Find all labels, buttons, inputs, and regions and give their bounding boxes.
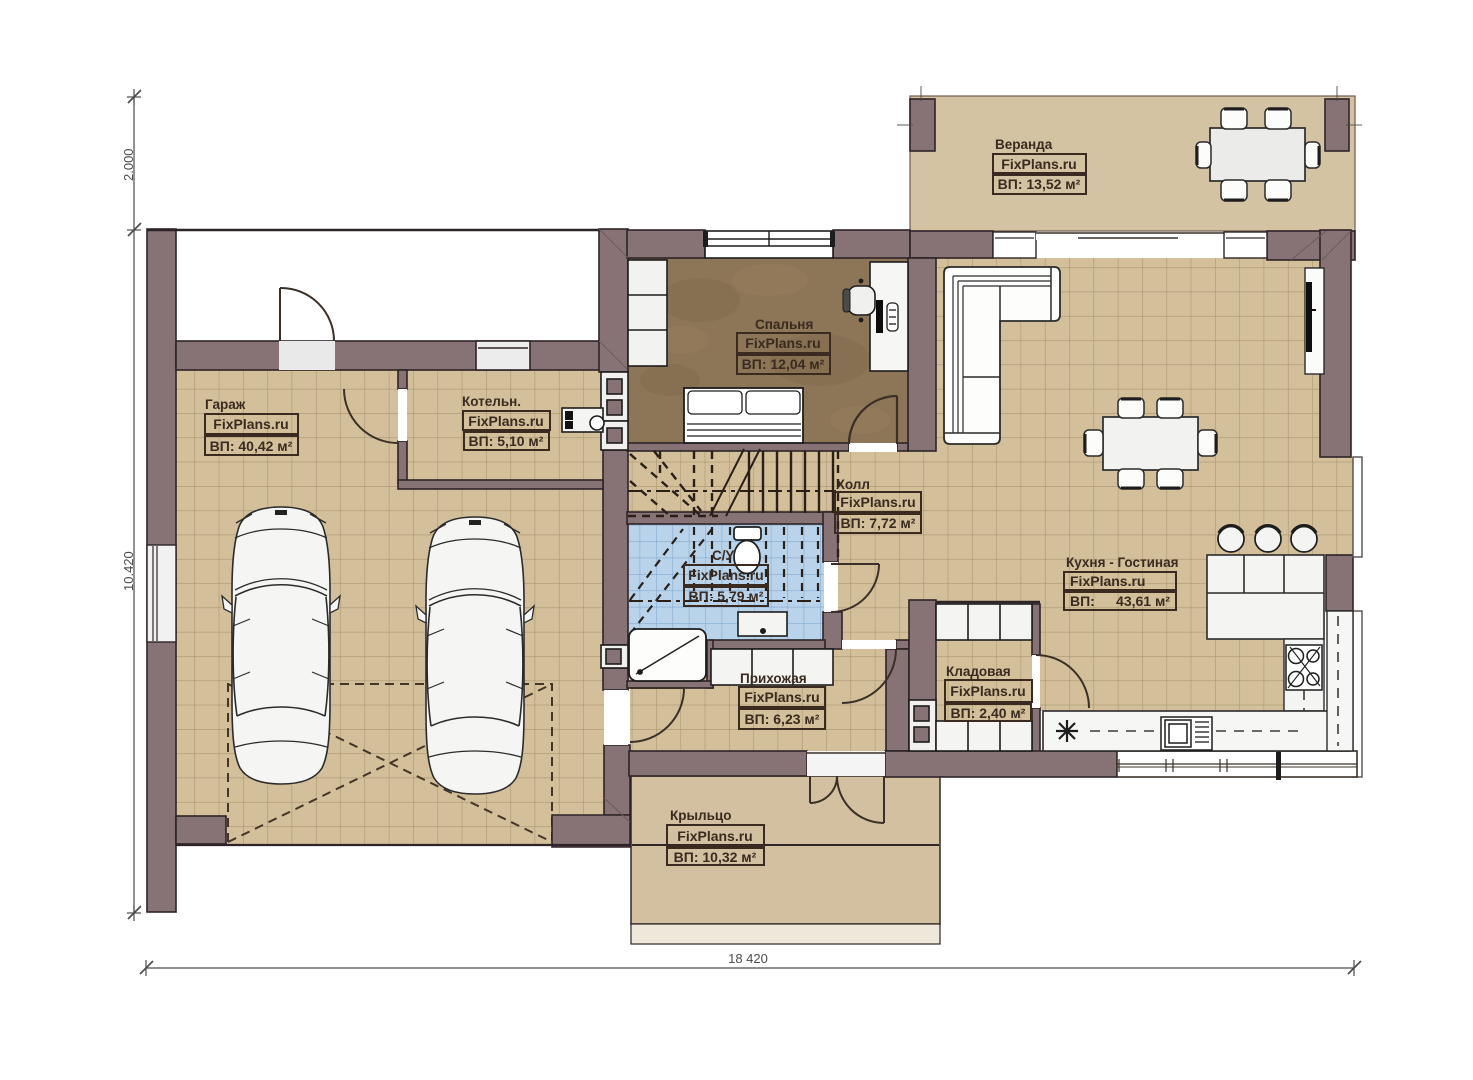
svg-text:ВП: 7,72 м²: ВП: 7,72 м² bbox=[841, 515, 916, 531]
svg-text:ВП: 12,04 м²: ВП: 12,04 м² bbox=[742, 356, 825, 372]
svg-text:Крыльцо: Крыльцо bbox=[670, 808, 731, 823]
svg-text:С/У: С/У bbox=[712, 548, 735, 563]
svg-text:FixPlans.ru: FixPlans.ru bbox=[745, 335, 820, 351]
svg-text:Веранда: Веранда bbox=[995, 137, 1053, 152]
svg-text:FixPlans.ru: FixPlans.ru bbox=[677, 828, 752, 844]
svg-text:Спальня: Спальня bbox=[755, 317, 813, 332]
svg-text:Котельн.: Котельн. bbox=[462, 394, 521, 409]
svg-text:10.420: 10.420 bbox=[121, 551, 136, 591]
svg-text:ВП: 2,40 м²: ВП: 2,40 м² bbox=[951, 705, 1026, 721]
svg-text:Гараж: Гараж bbox=[205, 397, 246, 412]
svg-text:Кладовая: Кладовая bbox=[946, 664, 1011, 679]
svg-text:43,61 м²: 43,61 м² bbox=[1116, 593, 1170, 609]
svg-text:ВП: 10,32 м²: ВП: 10,32 м² bbox=[674, 849, 757, 865]
svg-text:FixPlans.ru: FixPlans.ru bbox=[840, 494, 915, 510]
svg-text:ВП: 6,23 м²: ВП: 6,23 м² bbox=[745, 711, 820, 727]
svg-text:FixPlans.ru: FixPlans.ru bbox=[1070, 573, 1145, 589]
svg-text:Прихожая: Прихожая bbox=[740, 671, 807, 686]
svg-text:ВП:: ВП: bbox=[1070, 593, 1095, 609]
svg-text:FixPlans.ru: FixPlans.ru bbox=[468, 413, 543, 429]
svg-text:ВП: 5,10 м²: ВП: 5,10 м² bbox=[469, 433, 544, 449]
svg-text:FixPlans.ru: FixPlans.ru bbox=[950, 683, 1025, 699]
svg-text:2.000: 2.000 bbox=[121, 148, 136, 181]
svg-text:FixPlans.ru: FixPlans.ru bbox=[213, 416, 288, 432]
svg-text:ВП: 40,42 м²: ВП: 40,42 м² bbox=[210, 438, 293, 454]
svg-text:Холл: Холл bbox=[836, 477, 870, 492]
svg-text:FixPlans.ru: FixPlans.ru bbox=[688, 567, 763, 583]
svg-text:FixPlans.ru: FixPlans.ru bbox=[744, 689, 819, 705]
svg-text:18 420: 18 420 bbox=[728, 951, 768, 966]
svg-text:ВП: 13,52 м²: ВП: 13,52 м² bbox=[998, 176, 1081, 192]
svg-text:Кухня - Гостиная: Кухня - Гостиная bbox=[1066, 555, 1178, 570]
svg-text:FixPlans.ru: FixPlans.ru bbox=[1001, 156, 1076, 172]
svg-text:ВП: 5,79 м²: ВП: 5,79 м² bbox=[689, 588, 764, 604]
